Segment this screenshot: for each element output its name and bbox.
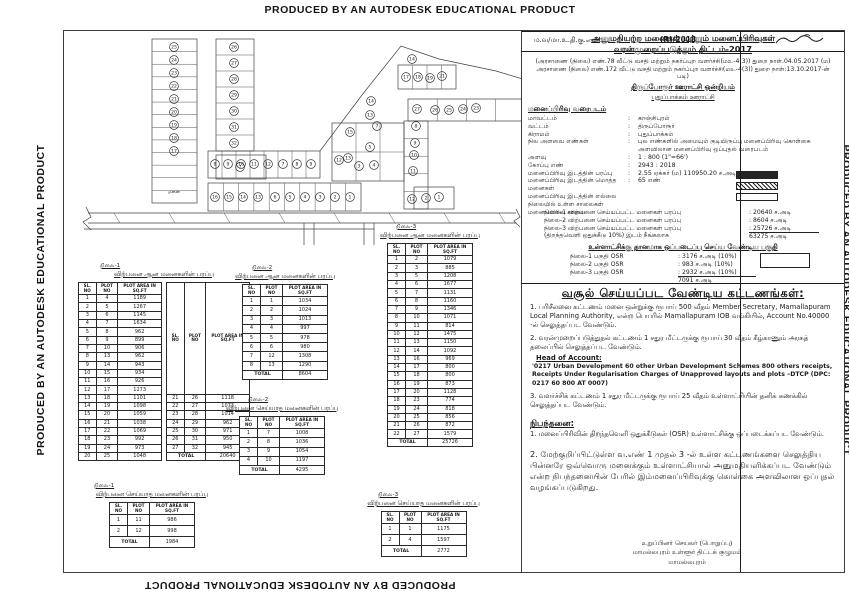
table-row: 13181101 (79, 394, 162, 402)
table-phase3-unsold: நிலை-3 விற்பனை செய்யாத மனைகளின் பரப்பு S… (356, 492, 491, 557)
svg-text:2: 2 (425, 196, 428, 202)
watermark-bottom: PRODUCED BY AN AUTODESK EDUCATIONAL PROD… (144, 579, 455, 591)
table-title: விற்பனை ஆன மனைகளின் பரப்பு (374, 231, 486, 240)
svg-text:12: 12 (336, 158, 342, 164)
svg-text:3: 3 (319, 195, 322, 201)
table-title: விற்பனை ஆன மனைகளின் பரப்பு (230, 272, 340, 281)
drawing-sheet: PRODUCED BY AN AUTODESK EDUCATIONAL PROD… (0, 0, 849, 600)
table-row: 141189 (79, 295, 162, 303)
sales-summary: நிலை-1 விற்பனை செய்யப்பட்ட மனைகள் பரப்பு… (544, 209, 836, 241)
sales-row: நிலை-1 விற்பனை செய்யப்பட்ட மனைகள் பரப்பு… (544, 209, 836, 217)
detail-row: அளவு:1 : 800 (1"=66') (528, 154, 840, 162)
table-row: 12171273 (79, 386, 162, 394)
svg-text:6: 6 (274, 195, 277, 201)
table-phase3-sold: நிலை-3 விற்பனை ஆன மனைகளின் பரப்பு SL. NO… (374, 224, 486, 447)
svg-text:15: 15 (226, 195, 232, 201)
fees-heading: வசூல் செய்யப்பட வேண்டிய கட்டணங்கள்: (522, 286, 844, 302)
table-phase-label: நிலை-2 (248, 397, 338, 404)
table-row: 681160 (388, 297, 473, 305)
table-row: 461677 (388, 281, 473, 289)
svg-text:26: 26 (432, 108, 438, 114)
svg-text:18: 18 (415, 75, 421, 81)
svg-text:13: 13 (367, 113, 373, 119)
osr-row: நிலை-2 பகுதி OSR: 983 ச.அடி (10%) (570, 261, 790, 269)
svg-text:12: 12 (265, 162, 271, 168)
section-divider (522, 283, 844, 284)
table-row: 171008 (240, 429, 325, 438)
table-phase1-unsold: நிலை-1 விற்பனை செய்யாத மனைகளின் பரப்பு S… (72, 483, 232, 548)
signatory-authority: மாமல்லபுரம் உள்ளூர் திட்டக் குழுமம் (552, 548, 822, 557)
svg-text:4: 4 (304, 195, 307, 201)
fee-item-3: 3. வளர்ச்சிக் கட்டணம் 1 சதுர மீட்டருக்கு… (530, 392, 838, 410)
panchayat-name: புதுப்பாக்கம் ஊராட்சி (522, 93, 844, 102)
svg-text:20: 20 (171, 110, 177, 116)
union-name: திருப்போரூர் ஊராட்சி ஒன்றியம் (522, 83, 844, 92)
table-row: 914943 (79, 361, 162, 369)
table-row: 66980 (243, 343, 328, 352)
svg-text:8: 8 (214, 162, 217, 168)
table-total-row: TOTAL8604 (243, 370, 328, 379)
svg-text:16: 16 (212, 195, 218, 201)
table-row: 58962 (79, 328, 162, 336)
table-phase-label: நிலை-1 (94, 483, 232, 490)
conditions-heading: நிபந்தனை: (530, 419, 574, 430)
osr-row: நிலை-1 பகுதி OSR: 3176 ச.அடி (10%) (570, 253, 790, 261)
svg-text:12: 12 (409, 197, 415, 203)
reference-number-value: (R)/2018 (660, 35, 696, 44)
legend-row: நிலையில் உள்ள சாலைகள் (528, 201, 840, 209)
svg-text:23: 23 (473, 106, 479, 112)
table-title: விற்பனை ஆன மனைகளின் பரப்பு (78, 270, 250, 279)
svg-text:9: 9 (310, 162, 313, 168)
table-phase-label: நிலை-2 (252, 265, 340, 272)
reference-row-divider (740, 31, 741, 572)
table-row: 44997 (243, 324, 328, 333)
svg-text:10: 10 (411, 153, 417, 159)
table-row: 251267 (79, 303, 162, 311)
table-phase2-unsold: நிலை-2 விற்பனை செய்யாத மனைகளின் பரப்பு S… (226, 397, 338, 475)
table-row: 1823992 (79, 436, 162, 444)
table-total-row: TOTAL1984 (110, 537, 195, 548)
table-row: 15201059 (79, 411, 162, 419)
watermark-left: PRODUCED BY AN AUTODESK EDUCATIONAL PROD… (35, 144, 47, 455)
table-row: 11131150 (388, 339, 473, 347)
table-row: 55978 (243, 333, 328, 342)
plot-table: SL. NOPLOT NOPLOT AREA IN SQ.FT121079238… (387, 243, 473, 447)
detail-row: மாவட்டம்:காஞ்சிபுரம் (528, 115, 840, 123)
table-row: 111034 (243, 297, 328, 306)
table-title: விற்பனை செய்யாத மனைகளின் பரப்பு (226, 404, 338, 413)
head-of-account-label: Head of Account: (536, 354, 602, 362)
svg-text:மனை: மனை (168, 190, 181, 195)
svg-text:8: 8 (296, 162, 299, 168)
svg-text:32: 32 (231, 141, 237, 147)
table-row: 571131 (388, 289, 473, 297)
stamp-box (760, 253, 810, 268)
table-row: 69899 (79, 336, 162, 344)
svg-text:9: 9 (414, 141, 417, 147)
table-row: 17201128 (388, 388, 473, 396)
table-row: 1518800 (388, 372, 473, 380)
sheet-border: 2524232221201918172627282930313278910111… (63, 30, 845, 573)
table-title: விற்பனை செய்யாத மனைகளின் பரப்பு (356, 499, 491, 508)
plot-table: SL. NOPLOT NOPLOT AREA IN SQ.FT111986212… (109, 502, 195, 548)
table-row: 1823774 (388, 397, 473, 405)
table-row: 710906 (79, 344, 162, 352)
table-row: 111986 (110, 515, 195, 526)
table-phase-label: நிலை-3 (396, 224, 486, 231)
legend-swatches (736, 171, 778, 205)
svg-text:23: 23 (171, 71, 177, 77)
government-order-text: (அரசாணை (நிலை) எண்.78 வீட்டு வசதி மற்றும… (530, 58, 836, 81)
table-row: 23885 (388, 264, 473, 272)
fee-item-1: 1. பரிசீலனை கட்டணம் மனை ஒன்றுக்கு ரூபாய்… (530, 303, 838, 331)
legend-row: மனைப்பிரிவு இடத்தின் எல்லை (528, 193, 840, 201)
svg-text:9: 9 (227, 162, 230, 168)
table-row: 361145 (79, 311, 162, 319)
svg-text:11: 11 (251, 162, 257, 168)
table-row: 10121475 (388, 330, 473, 338)
signatory-block: உறுப்பினர் செயலர் (பொறுப்பு) மாமல்லபுரம்… (552, 539, 822, 567)
svg-text:27: 27 (231, 61, 237, 67)
table-row: 121079 (388, 256, 473, 264)
table-total-row: TOTAL2772 (381, 546, 466, 557)
svg-text:24: 24 (460, 107, 466, 113)
svg-text:22: 22 (171, 84, 177, 90)
detail-row: வட்டம்:திருப்போரூர் (528, 123, 840, 131)
table-phase1-sold: நிலை-1 விற்பனை ஆன மனைகளின் பரப்பு SL. NO… (78, 263, 250, 461)
table-row: 1316969 (388, 355, 473, 363)
table-row: 471634 (79, 320, 162, 328)
table-phase2-sold: நிலை-2 விற்பனை ஆன மனைகளின் பரப்பு SL. NO… (230, 265, 340, 380)
plot-table: SL. NOPLOT NOPLOT AREA IN SQ.FT111034221… (242, 284, 328, 380)
signatory-place: மாமல்லபுரம் (552, 558, 822, 567)
table-row: 22271579 (388, 430, 473, 438)
reference-number-label: ம.வ/மா.உ.தி.கு.எண்: (534, 36, 602, 45)
condition-1: 1. மனைப்பிரிவின் திறந்தவெளி ஒதுக்கீடுகள்… (530, 430, 838, 439)
table-row: 111175 (381, 524, 466, 535)
table-row: 1924973 (79, 444, 162, 452)
table-row: 16211038 (79, 419, 162, 427)
svg-text:18: 18 (171, 136, 177, 142)
table-total-row: TOTAL4295 (240, 465, 325, 474)
svg-text:8: 8 (415, 124, 418, 130)
sales-row: (திறந்தவெளி ஒதுக்கீடு 10%) இடம் நீங்கலாக… (544, 232, 836, 241)
svg-text:24: 24 (171, 58, 177, 64)
legend-swatch-solid (736, 171, 778, 179)
svg-text:17: 17 (403, 75, 409, 81)
table-phase-label: நிலை-3 (378, 492, 491, 499)
table-row: 8131290 (243, 361, 328, 370)
table-row: 911814 (388, 322, 473, 330)
table-row: 212998 (110, 526, 195, 537)
detail-row: கிராமம்:புதுப்பாக்கம் (528, 131, 840, 139)
table-row: 2025856 (388, 413, 473, 421)
detail-row: மனைப்பிரிவு இடத்தின் பரப்பு:2.55 ஏக்கர் … (528, 170, 840, 178)
svg-text:28: 28 (231, 77, 237, 83)
condition-2: 2. மேற்குறிப்பிட்டுள்ள வ.எண் 1 முதல் 3 -… (530, 449, 838, 493)
plot-table: SL. NOPLOT NOPLOT AREA IN SQ.FT111175241… (381, 511, 467, 557)
svg-text:5: 5 (289, 195, 292, 201)
table-row: 1116926 (79, 378, 162, 386)
plot-table: SL. NOPLOT NOPLOT AREA IN SQ.FT171008281… (239, 416, 325, 475)
svg-text:19: 19 (427, 76, 433, 82)
table-title: விற்பனை செய்யாத மனைகளின் பரப்பு (72, 490, 232, 499)
svg-text:13: 13 (345, 156, 351, 162)
legend-swatch-empty (736, 193, 778, 201)
svg-text:17: 17 (171, 149, 177, 155)
table-row: 2126872 (388, 422, 473, 430)
svg-text:13: 13 (255, 195, 261, 201)
table-row: 281036 (240, 438, 325, 447)
osr-row: நிலை-3 பகுதி OSR: 2932 ச.அடி (10%) (570, 269, 790, 277)
table-row: 1619873 (388, 380, 473, 388)
svg-text:1: 1 (438, 195, 441, 201)
table-row: 791346 (388, 305, 473, 313)
table-row: 351208 (388, 272, 473, 280)
svg-text:14: 14 (240, 195, 246, 201)
svg-text:15: 15 (347, 130, 353, 136)
svg-text:25: 25 (446, 108, 452, 114)
svg-text:14: 14 (409, 57, 415, 63)
detail-row: கோப்பு எண்:2943 : 2018 (528, 162, 840, 170)
table-row: 7121308 (243, 352, 328, 361)
table-row: 241597 (381, 535, 466, 546)
signature-scribble-icon (770, 32, 830, 48)
detail-row: நில அளவை எண்கள்:புல எண்களில் அமையும் குட… (528, 138, 840, 154)
map-details: மாவட்டம்:காஞ்சிபுரம்வட்டம்:திருப்போரூர்க… (528, 115, 840, 216)
svg-text:5: 5 (369, 145, 372, 151)
signatory-designation: உறுப்பினர் செயலர் (பொறுப்பு) (552, 539, 822, 548)
svg-text:1: 1 (349, 195, 352, 201)
head-of-account-text: '0217 Urban Development 60 other Urban D… (532, 363, 836, 388)
table-row: 331013 (243, 315, 328, 324)
plot-table: SL. NOPLOT NOPLOT AREA IN SQ.FT141189251… (78, 282, 162, 461)
osr-heading: உள்ளாட்சிக்கு தானமாக ஒப்படைப்பு செய்ய வே… (522, 243, 844, 252)
osr-total: 7091 ச.அடி (678, 276, 756, 286)
table-row: 1015934 (79, 369, 162, 377)
svg-text:14: 14 (368, 99, 374, 105)
osr-rows: நிலை-1 பகுதி OSR: 3176 ச.அடி (10%)நிலை-2… (570, 253, 790, 286)
svg-text:19: 19 (171, 123, 177, 129)
sales-row: நிலை-2 விற்பனை செய்யப்பட்ட மனைகள் பரப்பு… (544, 217, 836, 225)
svg-text:7: 7 (282, 162, 285, 168)
svg-text:26: 26 (231, 45, 237, 51)
svg-text:3: 3 (358, 164, 361, 170)
legend-swatch-hatch (736, 182, 778, 190)
svg-text:21: 21 (439, 74, 445, 80)
table-row: 8101071 (388, 314, 473, 322)
detail-row: மனைப்பிரிவு இடத்தின் மொத்த மனைகள்:65 எண் (528, 177, 840, 193)
table-row: 4101197 (240, 456, 325, 465)
svg-text:11: 11 (410, 169, 416, 175)
watermark-top: PRODUCED BY AN AUTODESK EDUCATIONAL PROD… (264, 4, 575, 16)
svg-text:30: 30 (231, 109, 237, 115)
svg-text:7: 7 (376, 124, 379, 130)
svg-text:21: 21 (171, 97, 177, 103)
svg-text:31: 31 (231, 125, 237, 131)
table-row: 1417800 (388, 364, 473, 372)
table-row: 1924818 (388, 405, 473, 413)
svg-text:4: 4 (373, 163, 376, 169)
svg-text:10: 10 (238, 162, 244, 168)
svg-text:29: 29 (231, 93, 237, 99)
svg-text:27: 27 (414, 107, 420, 113)
svg-text:2: 2 (334, 195, 337, 201)
svg-text:25: 25 (171, 45, 177, 51)
fee-item-2: 2. வரன்முறைப்படுத்துதல் கட்டணம் 1 சதுர ம… (530, 334, 838, 352)
table-phase-label: நிலை-1 (100, 263, 250, 270)
table-row: 813962 (79, 353, 162, 361)
table-row: 12141092 (388, 347, 473, 355)
table-row: 17221069 (79, 427, 162, 435)
map-details-heading: மனைப்பிரிவு வரைபடம் (528, 105, 606, 114)
table-total-row: TOTAL25726 (388, 438, 473, 446)
info-panel: அனுமதியற்ற மனைகள் மற்றும் மனைப்பிரிவுகள்… (521, 31, 844, 572)
table-row: 221024 (243, 306, 328, 315)
table-row: 391054 (240, 447, 325, 456)
table-row: 14191098 (79, 403, 162, 411)
table-row: 20251048 (79, 452, 162, 460)
sales-row: நிலை-3 விற்பனை செய்யப்பட்ட மனைகள் பரப்பு… (544, 225, 836, 233)
